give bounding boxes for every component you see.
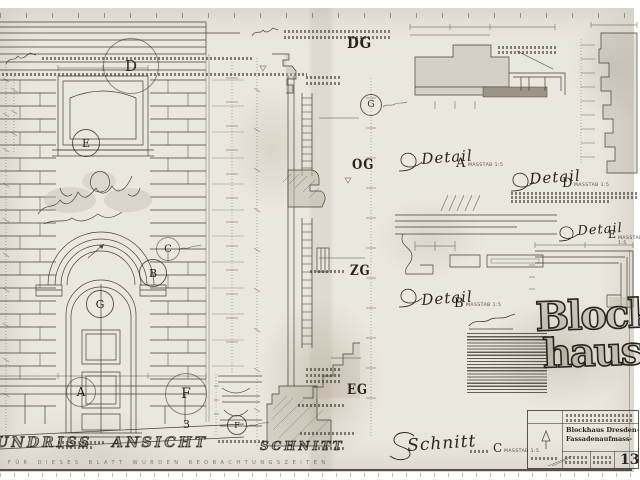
section-window-upper xyxy=(302,93,312,176)
neighbor-bay-faint xyxy=(212,80,244,366)
sheet-number: 13 xyxy=(620,452,639,468)
details-drawings xyxy=(395,15,640,465)
detail-b-letter: B xyxy=(454,296,464,311)
title-block-microtext xyxy=(593,461,611,464)
detail-e-letter: E xyxy=(608,228,616,241)
rustication-left-pier xyxy=(0,80,56,379)
floor-label-og: OG xyxy=(352,157,374,173)
callout-e-letter: E xyxy=(82,137,90,150)
annotation-heading-handwriting xyxy=(467,316,517,330)
callout-c: C xyxy=(156,237,180,261)
title-block-divider xyxy=(590,451,591,468)
note-line xyxy=(284,36,390,39)
callout-d: D xyxy=(103,38,159,94)
blockhaus-line2: haus xyxy=(542,333,640,373)
detail-a-letter: A xyxy=(456,156,465,171)
leader-note xyxy=(298,404,344,407)
detail-e-script: Detail xyxy=(577,221,623,239)
callout-b-letter: B xyxy=(149,267,157,280)
footer-note: FÜR DIESES BLATT WURDEN BEOBACHTUNGSZEIT… xyxy=(8,460,330,466)
floor-label-zg: ZG xyxy=(350,263,371,279)
callout-e: E xyxy=(72,129,100,157)
callout-g-letter: G xyxy=(96,298,105,311)
handwritten-note-topleft xyxy=(4,52,38,68)
caption-microtext xyxy=(58,441,106,444)
callout-g-section-letter: G xyxy=(367,100,374,110)
section-wall xyxy=(288,76,294,386)
title-block-microtext xyxy=(566,414,632,417)
title-block: Blockhaus Dresden- Fassadenaufmass- 13 xyxy=(527,410,639,469)
detail-d-scale: MASSTAB 1:5 xyxy=(574,183,609,188)
caption-ansicht: ANSICHT xyxy=(112,435,208,451)
leader-note xyxy=(306,82,340,85)
callout-g-section: G xyxy=(360,94,382,116)
note-line xyxy=(511,192,637,195)
handwritten-mark-bottomright xyxy=(546,454,576,468)
detail-b-profile xyxy=(395,195,557,274)
title-block-divider xyxy=(528,423,638,424)
bottom-border-line xyxy=(0,469,632,471)
note-line xyxy=(498,46,558,49)
caption-microtext xyxy=(58,446,94,449)
caption-schnitt: SCHNITT xyxy=(260,439,345,453)
callout-c-handwriting xyxy=(178,243,202,253)
caption-microtext xyxy=(318,447,346,450)
schnitt-c-letter: C xyxy=(493,441,502,455)
title-block-microtext xyxy=(593,456,611,459)
detail-d-letter: D xyxy=(562,176,572,191)
leader-note xyxy=(218,440,264,443)
callout-f-small-letter: F xyxy=(234,421,240,430)
blockhaus-lettering: Block- haus xyxy=(535,296,640,373)
callout-f-large: F xyxy=(165,373,207,415)
section-zg-sill xyxy=(317,248,329,272)
callout-f-small: F xyxy=(227,415,247,435)
detail-b-scale: MASSTAB 1:5 xyxy=(466,303,501,308)
detail-d-profile xyxy=(581,22,637,173)
note-line xyxy=(284,30,390,33)
leader-note xyxy=(306,374,342,377)
callout-g-elevation: G xyxy=(86,290,114,318)
floor-label-dg: DG xyxy=(347,33,372,52)
detail-a-scale: MASSTAB 1:5 xyxy=(468,163,503,168)
scanned-drawing-sheet: D E C B G A F 3 xyxy=(0,0,640,480)
note-line xyxy=(511,196,637,199)
title-block-microtext xyxy=(566,419,632,422)
rustication-right-pier xyxy=(150,80,206,379)
leader-note xyxy=(310,270,344,273)
title-block-divider xyxy=(614,451,615,468)
callout-b: B xyxy=(139,259,167,287)
note-line xyxy=(498,51,558,54)
callout-f-letter: F xyxy=(181,386,191,402)
callout-f-handwriting xyxy=(246,420,270,430)
section-leaders xyxy=(260,66,365,358)
leader-note xyxy=(306,76,340,79)
project-title-line2: Fassadenaufmass- xyxy=(566,435,632,443)
note-line xyxy=(511,200,611,203)
handwritten-note-section xyxy=(250,26,280,40)
detail-a-script: Detail xyxy=(421,146,474,168)
project-title-line1: Blockhaus Dresden- xyxy=(566,426,639,434)
note-line xyxy=(42,57,252,60)
bottom-ruler-ticks xyxy=(0,473,632,477)
leader-note xyxy=(306,368,342,371)
leader-note xyxy=(306,380,342,383)
detail-e-scale: MASSTAB 1:5 xyxy=(618,236,640,246)
leader-note xyxy=(300,432,356,435)
garland-ornament xyxy=(38,171,152,224)
section-window-lower xyxy=(302,218,312,348)
callout-a: A xyxy=(66,377,96,407)
note-line xyxy=(470,450,490,453)
detail-a-plan xyxy=(410,24,565,109)
callout-c-letter: C xyxy=(164,244,172,255)
course-number: 3 xyxy=(183,418,190,431)
annotation-text-block xyxy=(467,333,547,395)
north-arrow-symbol xyxy=(536,429,556,451)
floor-label-eg: EG xyxy=(347,382,368,398)
callout-a-letter: A xyxy=(77,385,86,399)
